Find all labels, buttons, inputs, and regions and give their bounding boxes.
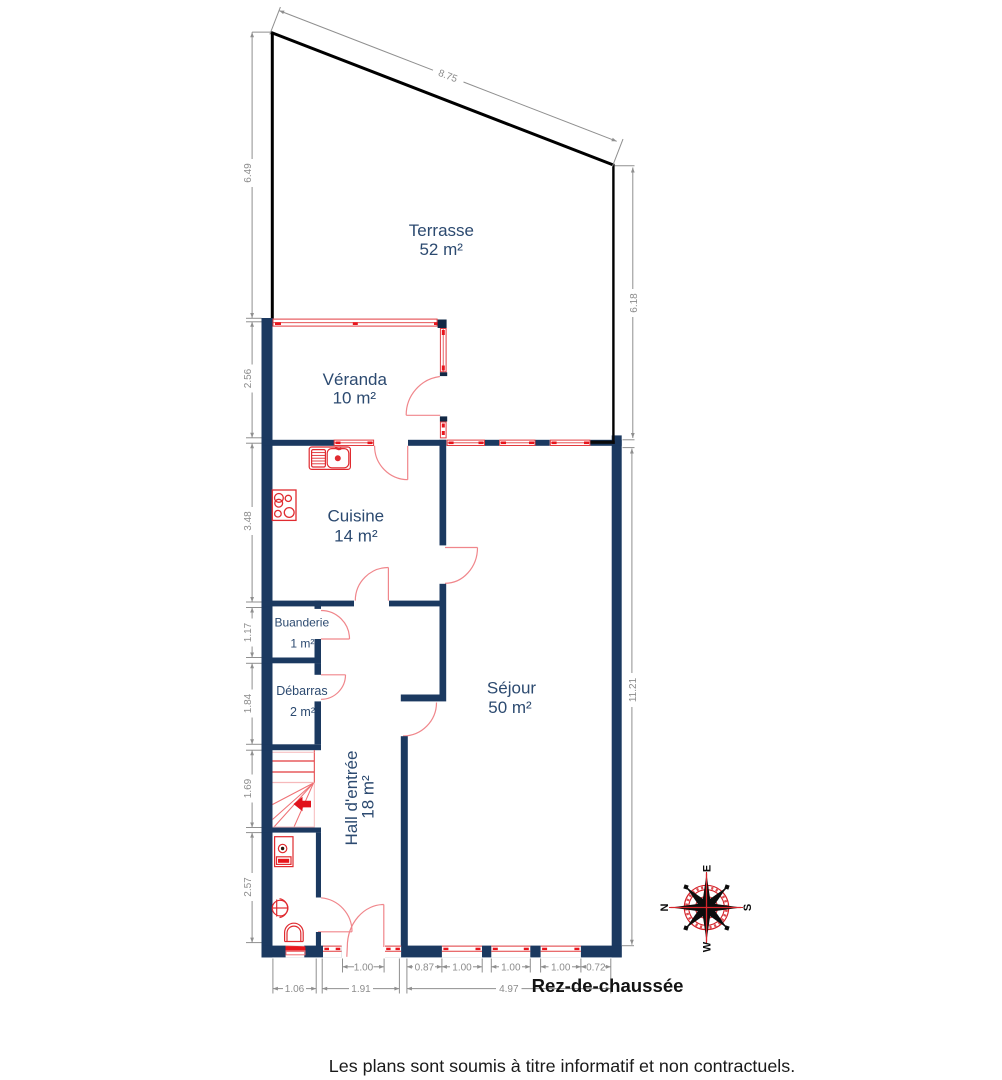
svg-text:3.48: 3.48 xyxy=(243,511,254,531)
svg-text:50 m²: 50 m² xyxy=(488,698,532,717)
svg-text:1.00: 1.00 xyxy=(452,962,472,973)
svg-text:1.17: 1.17 xyxy=(243,622,254,642)
svg-text:4.97: 4.97 xyxy=(499,984,519,995)
svg-text:Cuisine: Cuisine xyxy=(327,506,384,525)
svg-text:1.84: 1.84 xyxy=(243,693,254,713)
svg-text:1.00: 1.00 xyxy=(354,962,374,973)
svg-text:Séjour: Séjour xyxy=(487,679,536,698)
svg-text:Les plans sont soumis à titre: Les plans sont soumis à titre informatif… xyxy=(329,1056,795,1076)
svg-text:10 m²: 10 m² xyxy=(333,388,377,407)
svg-text:6.49: 6.49 xyxy=(243,163,254,183)
svg-text:1.00: 1.00 xyxy=(551,962,571,973)
svg-text:11.21: 11.21 xyxy=(628,677,639,702)
svg-text:2.57: 2.57 xyxy=(243,877,254,897)
svg-text:1.06: 1.06 xyxy=(285,984,305,995)
svg-text:1.91: 1.91 xyxy=(351,984,371,995)
svg-text:Buanderie: Buanderie xyxy=(274,616,329,630)
svg-text:14 m²: 14 m² xyxy=(334,526,378,545)
svg-text:Terrasse: Terrasse xyxy=(409,221,474,240)
svg-text:S: S xyxy=(742,904,754,911)
svg-text:N: N xyxy=(659,903,671,911)
svg-text:Débarras: Débarras xyxy=(276,684,327,698)
svg-text:2 m²: 2 m² xyxy=(290,705,315,719)
svg-text:1.00: 1.00 xyxy=(501,962,521,973)
svg-text:E: E xyxy=(702,865,714,872)
svg-text:0.72: 0.72 xyxy=(586,962,606,973)
svg-text:W: W xyxy=(702,941,714,952)
svg-text:8.75: 8.75 xyxy=(437,68,460,85)
svg-text:1.69: 1.69 xyxy=(243,778,254,798)
svg-text:Rez-de-chaussée: Rez-de-chaussée xyxy=(532,975,684,996)
svg-text:52 m²: 52 m² xyxy=(419,240,463,259)
svg-text:6.18: 6.18 xyxy=(629,293,640,313)
svg-text:Véranda: Véranda xyxy=(323,370,388,389)
svg-text:18 m²: 18 m² xyxy=(359,775,378,819)
svg-text:2.56: 2.56 xyxy=(243,368,254,388)
svg-text:1 m²: 1 m² xyxy=(290,637,314,651)
svg-text:0.87: 0.87 xyxy=(415,962,435,973)
